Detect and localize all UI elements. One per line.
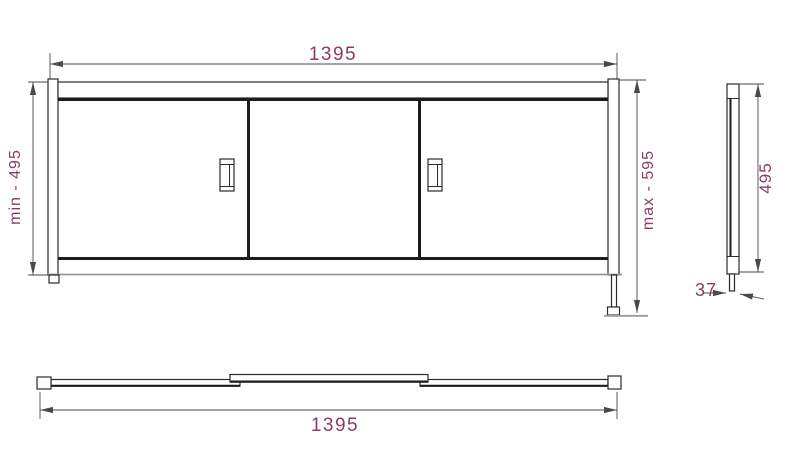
dim-depth-arrow-right xyxy=(740,294,764,299)
top-right-end-cap xyxy=(608,376,621,389)
front-left-post xyxy=(48,79,58,275)
front-left-foot xyxy=(49,275,59,283)
technical-drawing-canvas: 1395 xyxy=(0,0,785,460)
dim-front-max-height: max - 595 xyxy=(619,80,657,313)
dim-min-label: min - 495 xyxy=(7,149,24,225)
side-profile-body xyxy=(727,84,739,274)
side-leg xyxy=(730,274,735,291)
sliding-doors xyxy=(58,101,608,259)
dim-max-label: max - 595 xyxy=(640,150,657,230)
drawing-svg: 1395 xyxy=(0,0,785,460)
dim-side-height-label: 495 xyxy=(756,162,775,193)
dim-front-width-label: 1395 xyxy=(309,44,357,65)
dim-front-width: 1395 xyxy=(50,44,617,79)
side-view: 495 37 xyxy=(695,84,775,300)
dim-top-width-label: 1395 xyxy=(311,415,359,436)
front-right-foot xyxy=(608,307,620,315)
dim-front-min-height: min - 495 xyxy=(7,82,48,275)
top-view: 1395 xyxy=(37,375,621,437)
dim-side-depth-label: 37 xyxy=(695,280,717,300)
front-top-rail xyxy=(58,82,608,98)
door-handle-2 xyxy=(428,159,442,191)
top-left-end-cap xyxy=(37,377,51,389)
dim-top-width: 1395 xyxy=(40,392,617,436)
dim-side-height: 495 xyxy=(739,84,775,272)
door-handle-1 xyxy=(220,159,234,191)
front-right-post xyxy=(608,79,619,275)
front-right-leg xyxy=(612,275,617,307)
front-view: 1395 xyxy=(7,44,657,316)
